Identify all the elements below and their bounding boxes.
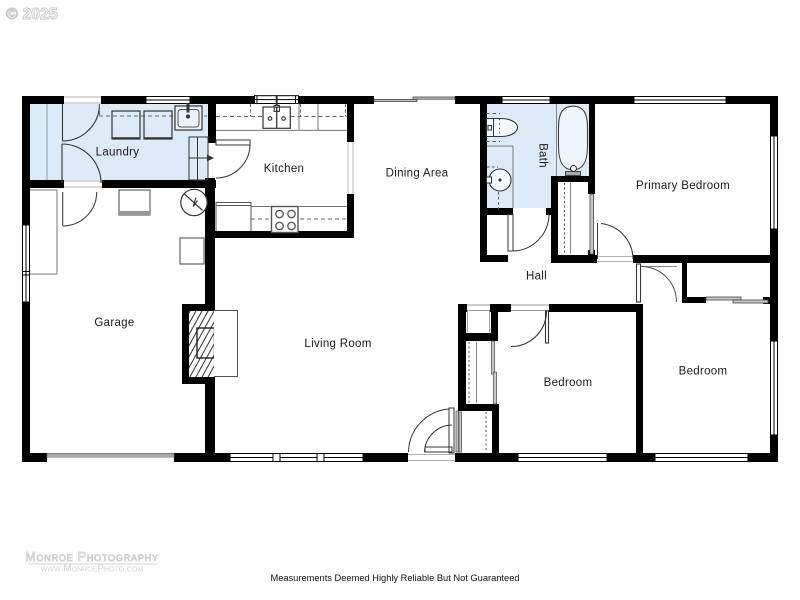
svg-text:Hall: Hall xyxy=(526,271,547,283)
svg-text:Bedroom: Bedroom xyxy=(544,377,593,389)
svg-text:Living Room: Living Room xyxy=(304,338,371,350)
svg-text:Kitchen: Kitchen xyxy=(264,163,304,175)
svg-text:© 2025: © 2025 xyxy=(6,6,58,23)
svg-text:Measurements Deemed Highly Rel: Measurements Deemed Highly Reliable But … xyxy=(270,573,519,583)
svg-text:Bath: Bath xyxy=(537,143,549,168)
svg-text:Laundry: Laundry xyxy=(96,147,140,159)
svg-text:Dining Area: Dining Area xyxy=(386,168,449,180)
svg-text:Bedroom: Bedroom xyxy=(679,366,728,378)
svg-text:Primary Bedroom: Primary Bedroom xyxy=(636,180,730,192)
svg-text:Monroe Photography: Monroe Photography xyxy=(25,550,158,564)
svg-text:www.MonroePhoto.com: www.MonroePhoto.com xyxy=(41,564,144,575)
svg-text:Garage: Garage xyxy=(94,317,134,329)
